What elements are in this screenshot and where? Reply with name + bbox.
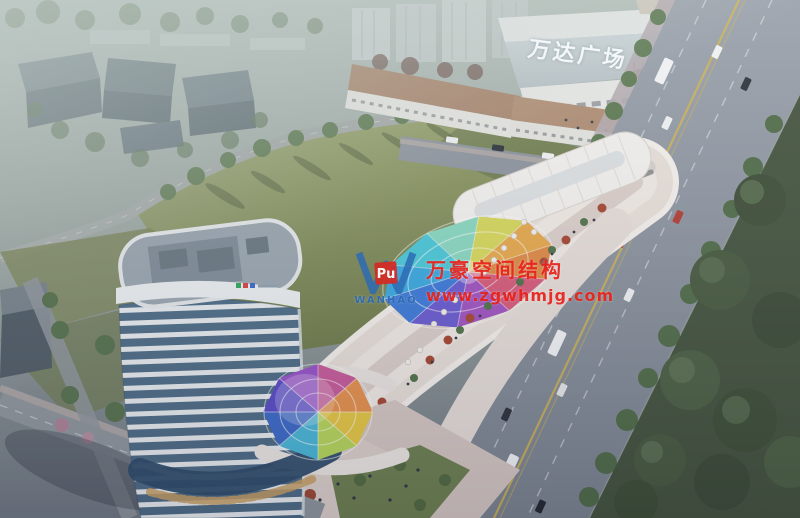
dusk-overlay	[0, 0, 800, 518]
rendering-canvas	[0, 0, 800, 518]
scene-root: 万达广场 Pu WANHAO 万豪空间结构 www.zgwhmjg.com	[0, 0, 800, 518]
